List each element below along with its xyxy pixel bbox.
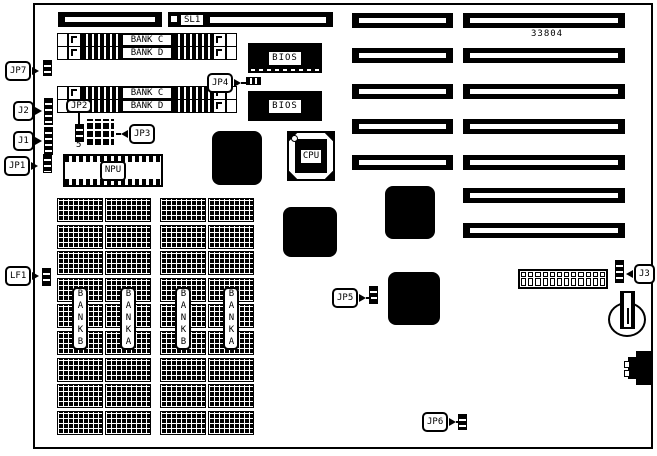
jp4-pointer-stem — [241, 82, 246, 84]
power-pin — [564, 278, 569, 286]
keyboard-connector-pin — [624, 370, 630, 377]
j1-label-group: J1 — [13, 131, 42, 151]
dram-chip — [105, 225, 151, 249]
isa-slot-short-4 — [352, 119, 453, 134]
jp7-label: JP7 — [5, 61, 31, 81]
isa-slot-long-2 — [463, 48, 625, 63]
bank-c-text: BANK C — [131, 89, 164, 98]
simm-clip — [213, 99, 226, 113]
isa-slot-short-5 — [352, 155, 453, 170]
bank-d-label: BANK D — [121, 46, 173, 60]
sl1-label-text: SL1 — [184, 16, 200, 25]
bank-a-text: BANKA — [227, 289, 236, 349]
dram-chip — [208, 384, 254, 408]
qfp-chip-2 — [283, 207, 337, 257]
bios-text: BIOS — [272, 101, 298, 111]
jp6-pointer-icon — [449, 418, 456, 426]
jp2-jumper — [75, 124, 84, 142]
j3-pointer-icon — [626, 270, 633, 278]
isa-slot-top-1 — [58, 12, 162, 27]
lf1-jumper — [42, 268, 51, 286]
simm-endcap — [226, 46, 237, 60]
jp5-text: JP5 — [337, 294, 353, 303]
simm-contacts — [81, 46, 121, 60]
simm-endcap — [226, 33, 237, 47]
simm-endcap — [57, 86, 68, 100]
bios-text: BIOS — [272, 53, 298, 63]
jp6-label-group: JP6 — [422, 412, 461, 432]
power-pin — [600, 272, 605, 277]
simm-clip — [68, 33, 81, 47]
power-pin — [593, 278, 598, 286]
bank-d-label: BANK D — [121, 99, 173, 113]
jp4-pointer-icon — [234, 79, 241, 87]
power-pin — [600, 278, 605, 286]
simm-contacts — [173, 46, 213, 60]
dram-chip — [57, 251, 103, 275]
dram-chip — [57, 198, 103, 222]
lf1-pointer-icon — [32, 272, 39, 280]
jp5-pointer-stem — [366, 297, 371, 299]
dram-chip — [105, 358, 151, 382]
simm-contacts — [81, 86, 121, 100]
jp5-pointer-icon — [359, 294, 366, 302]
j3-jumper — [615, 260, 624, 283]
dram-chip — [57, 225, 103, 249]
j1-pointer-icon — [35, 137, 42, 145]
jp2-pin-number: 5 — [76, 141, 82, 150]
dram-chip — [208, 251, 254, 275]
power-pin — [571, 272, 576, 277]
sl1-key-notch — [171, 16, 177, 22]
cpu-label: CPU — [300, 149, 322, 164]
j1-text: J1 — [18, 137, 29, 146]
lf1-label: LF1 — [5, 266, 31, 286]
qfp-chip-1 — [212, 131, 262, 185]
simm-clip — [213, 46, 226, 60]
sl1-slot-stripe — [210, 17, 326, 23]
isa-slot-long-7 — [463, 223, 625, 238]
power-pin — [557, 272, 562, 277]
bios-chip-2-label: BIOS — [268, 99, 302, 114]
j3-text: J3 — [639, 270, 650, 279]
power-pin — [543, 278, 548, 286]
board-part-number: 33804 — [531, 30, 563, 39]
jp1-jumper — [43, 154, 52, 173]
power-pin — [528, 272, 533, 277]
isa-slot-short-2 — [352, 48, 453, 63]
power-connector-pins-top — [521, 272, 605, 277]
simm-socket-bank-c-1: BANK C — [57, 33, 237, 47]
dram-chip — [57, 411, 103, 435]
j1-label: J1 — [13, 131, 34, 151]
jp3-pointer-icon — [121, 130, 128, 138]
power-pin — [557, 278, 562, 286]
power-pin — [586, 272, 591, 277]
jp7-label-group: JP7 — [5, 61, 39, 81]
bank-d-text: BANK D — [131, 49, 164, 58]
bank-b-text: BANKB — [76, 289, 85, 349]
jp2-label: JP2 — [66, 99, 92, 113]
jp1-label: JP1 — [4, 156, 30, 176]
dram-chip — [160, 358, 206, 382]
isa-slot-short-3 — [352, 84, 453, 99]
bank-b-vertical-label: BANKB — [175, 287, 191, 350]
bank-b-vertical-label: BANKB — [72, 287, 88, 350]
dram-chip — [208, 358, 254, 382]
jp7-pointer-icon — [32, 67, 39, 75]
j2-text: J2 — [18, 107, 29, 116]
isa-slot-long-6 — [463, 188, 625, 203]
dram-chip — [57, 358, 103, 382]
simm-endcap — [57, 33, 68, 47]
power-pin — [564, 272, 569, 277]
jp5-label: JP5 — [332, 288, 358, 308]
isa-slot-long-5 — [463, 155, 625, 170]
jp3-text: JP3 — [134, 130, 150, 139]
motherboard-diagram: SL1 BANK C BANK D BANK C BANK D BIOS BIO… — [0, 0, 657, 456]
j2-label: J2 — [13, 101, 34, 121]
power-pin — [578, 272, 583, 277]
cpu-text: CPU — [303, 151, 319, 161]
cpu-chip: CPU — [295, 139, 327, 173]
bank-a-vertical-label: BANKA — [120, 287, 136, 350]
qfp-chip-4 — [388, 272, 440, 325]
j1-jumper — [44, 127, 53, 155]
jp6-label: JP6 — [422, 412, 448, 432]
crystal-component — [620, 291, 635, 329]
j2-label-group: J2 — [13, 101, 42, 121]
power-pin — [550, 278, 555, 286]
dram-chip — [160, 225, 206, 249]
qfp-chip-3 — [385, 186, 435, 239]
power-pin — [535, 272, 540, 277]
simm-contacts — [81, 33, 121, 47]
dram-chip — [160, 251, 206, 275]
j3-label: J3 — [634, 264, 655, 284]
j3-label-group: J3 — [626, 264, 655, 284]
power-pin — [543, 272, 548, 277]
jp6-text: JP6 — [427, 418, 443, 427]
dram-chip — [105, 251, 151, 275]
j2-jumper — [44, 98, 53, 125]
npu-socket: NPU — [63, 154, 163, 187]
npu-text: NPU — [105, 166, 121, 175]
simm-contacts — [173, 33, 213, 47]
bank-c-text: BANK C — [131, 36, 164, 45]
keyboard-connector — [636, 351, 653, 385]
power-pin — [528, 278, 533, 286]
cpu-pin1-dot — [291, 135, 298, 142]
bios-chip-1-label: BIOS — [268, 51, 302, 66]
dram-chip — [105, 411, 151, 435]
simm-socket-bank-d-1: BANK D — [57, 46, 237, 60]
jp1-pointer-icon — [31, 162, 38, 170]
jp7-text: JP7 — [10, 67, 26, 76]
power-pin — [521, 272, 526, 277]
jp6-pointer-stem — [456, 421, 461, 423]
dram-chip — [208, 411, 254, 435]
bios-chip-1: BIOS — [248, 43, 322, 73]
dram-chip — [208, 198, 254, 222]
power-connector — [518, 269, 608, 289]
power-pin — [578, 278, 583, 286]
dram-chip — [105, 198, 151, 222]
cpu-socket: CPU — [287, 131, 335, 181]
jp5-label-group: JP5 — [332, 288, 371, 308]
isa-slot-long-3 — [463, 84, 625, 99]
j2-pointer-icon — [35, 107, 42, 115]
dram-chip — [105, 384, 151, 408]
isa-slot-long-4 — [463, 119, 625, 134]
bank-a-vertical-label: BANKA — [223, 287, 239, 350]
lf1-text: LF1 — [10, 272, 26, 281]
simm-endcap — [57, 46, 68, 60]
jp3-label: JP3 — [129, 124, 155, 144]
simm-clip — [68, 86, 81, 100]
bios-chip-2: BIOS — [248, 91, 322, 121]
bank-c-label: BANK C — [121, 33, 173, 47]
jp4-text: JP4 — [212, 79, 228, 88]
simm-contacts — [173, 99, 213, 113]
dram-chip — [160, 384, 206, 408]
jp1-label-group: JP1 — [4, 156, 38, 176]
power-pin — [535, 278, 540, 286]
power-pin — [571, 278, 576, 286]
jp4-label-group: JP4 — [207, 73, 246, 93]
power-pin — [550, 272, 555, 277]
part-number-text: 33804 — [531, 29, 563, 39]
power-connector-pins-bottom — [521, 278, 605, 286]
jp4-jumper — [246, 77, 261, 85]
dram-chip — [57, 384, 103, 408]
jp7-jumper — [43, 60, 52, 76]
dram-chip — [160, 411, 206, 435]
bank-b-text: BANKB — [179, 289, 188, 349]
sl1-label: SL1 — [179, 13, 205, 27]
jp1-text: JP1 — [9, 162, 25, 171]
isa-slot-long-1 — [463, 13, 625, 28]
dram-chip — [208, 225, 254, 249]
power-pin — [593, 272, 598, 277]
bank-c-label: BANK C — [121, 86, 173, 100]
lf1-label-group: LF1 — [5, 266, 39, 286]
simm-endcap — [226, 99, 237, 113]
dram-chip — [160, 198, 206, 222]
power-pin — [586, 278, 591, 286]
bank-d-text: BANK D — [131, 102, 164, 111]
bank-a-text: BANKA — [124, 289, 133, 349]
jp4-label: JP4 — [207, 73, 233, 93]
simm-clip — [213, 33, 226, 47]
simm-clip — [68, 46, 81, 60]
jp3-component — [87, 119, 114, 145]
npu-label: NPU — [100, 161, 126, 181]
jp2-text: JP2 — [71, 102, 87, 111]
jp3-label-group: JP3 — [116, 124, 155, 144]
power-pin — [521, 278, 526, 286]
keyboard-connector-pin — [624, 361, 630, 368]
isa-slot-short-1 — [352, 13, 453, 28]
